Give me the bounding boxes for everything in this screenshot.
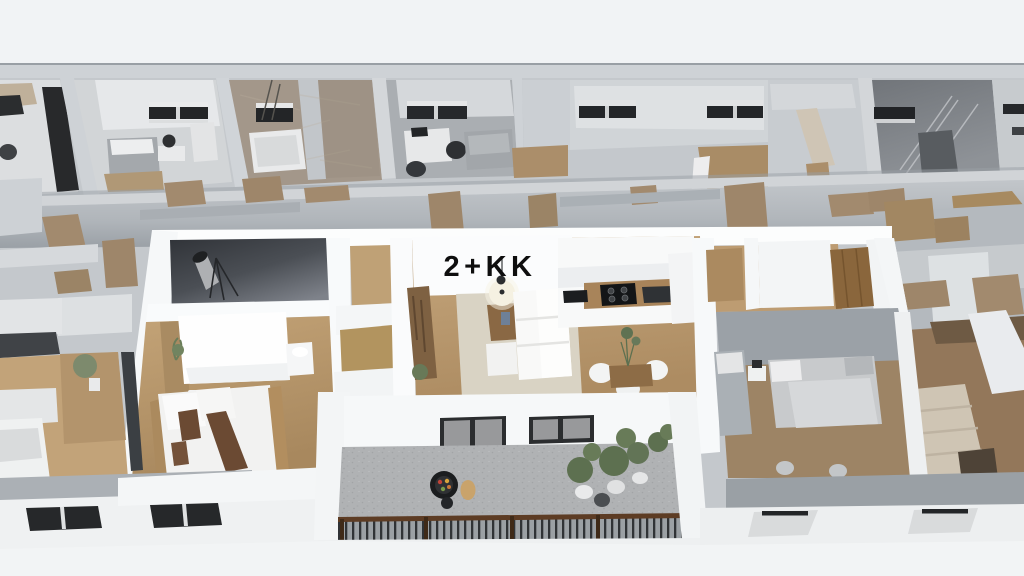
svg-text:2+KK: 2+KK (444, 251, 537, 283)
